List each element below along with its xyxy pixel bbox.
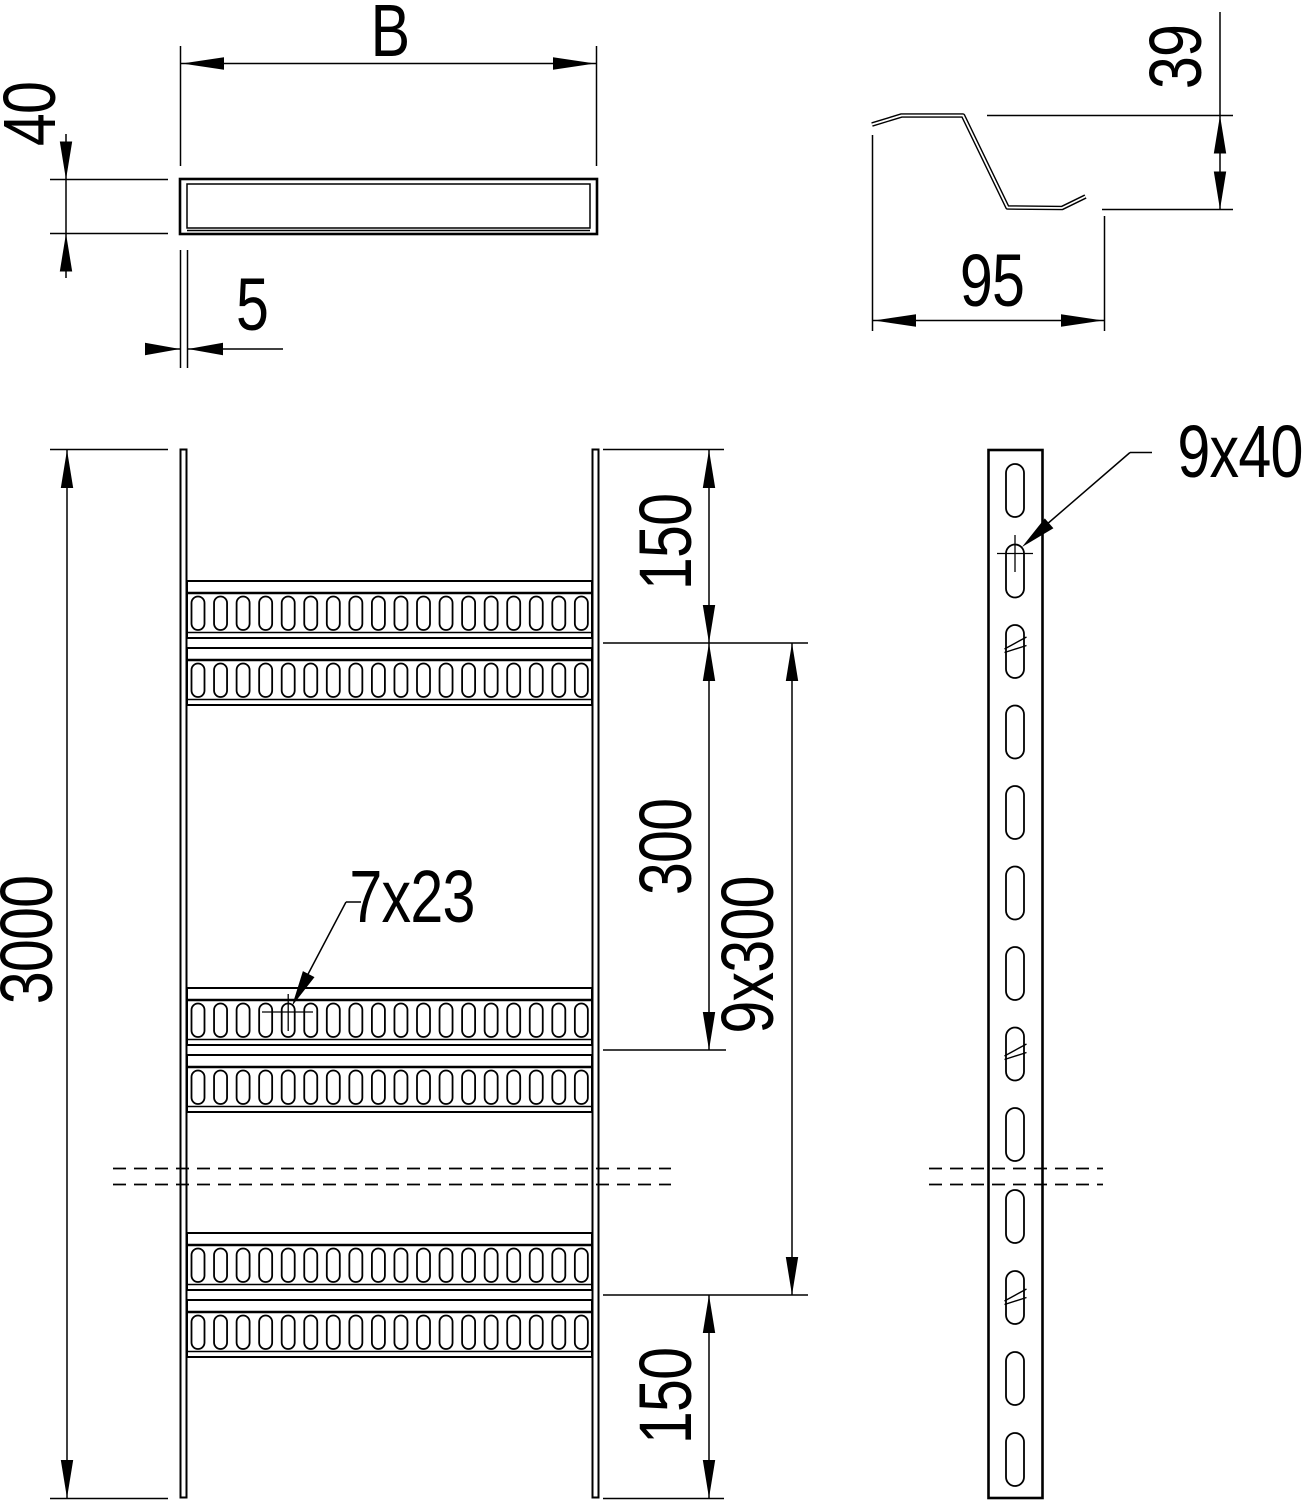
rung-slot bbox=[552, 1249, 565, 1283]
rung-band bbox=[187, 581, 592, 638]
rung-slot bbox=[349, 1071, 362, 1105]
rung-slot bbox=[575, 1004, 588, 1038]
rung-band bbox=[187, 1055, 592, 1112]
dim-label-length: 3000 bbox=[0, 876, 68, 1004]
rail-slot bbox=[1006, 1190, 1024, 1243]
rung-slot bbox=[304, 1316, 317, 1350]
rung-slot bbox=[552, 597, 565, 631]
dim-rail-thickness-5: 5 bbox=[145, 250, 283, 368]
rung-slot bbox=[237, 1071, 250, 1105]
rung-slot bbox=[304, 1249, 317, 1283]
rung-slot bbox=[214, 664, 227, 698]
rung-slot bbox=[552, 1316, 565, 1350]
dim-total-pitch-9x300: 9x300 bbox=[603, 643, 808, 1295]
rung-slot bbox=[327, 1249, 340, 1283]
rail-slot bbox=[1006, 867, 1024, 920]
rung-slot bbox=[237, 1316, 250, 1350]
rung-slot bbox=[575, 1071, 588, 1105]
rung-slot bbox=[259, 597, 272, 631]
dim-label-width-B: B bbox=[371, 0, 410, 72]
rail-slot bbox=[1006, 464, 1024, 517]
rung-slot bbox=[192, 1071, 205, 1105]
dim-label-rail-thickness: 5 bbox=[236, 264, 268, 347]
rung-slot bbox=[394, 597, 407, 631]
rung-slot bbox=[372, 1249, 385, 1283]
rung-slot bbox=[417, 597, 430, 631]
rung-slot bbox=[237, 1004, 250, 1038]
rail-slot bbox=[1006, 1352, 1024, 1405]
rung-slot bbox=[530, 597, 543, 631]
arrowhead bbox=[60, 234, 72, 272]
side-rail-outline bbox=[989, 450, 1043, 1498]
rung-slot bbox=[304, 1004, 317, 1038]
rung-slot bbox=[417, 1316, 430, 1350]
arrowhead bbox=[145, 343, 180, 355]
dim-width-B: B bbox=[181, 0, 597, 166]
rung-slot bbox=[237, 1249, 250, 1283]
rung-slot bbox=[394, 1249, 407, 1283]
arrowhead bbox=[703, 1295, 715, 1333]
rung-slot bbox=[417, 1004, 430, 1038]
rung-slot bbox=[507, 1071, 520, 1105]
left-rail bbox=[181, 450, 187, 1498]
technical-drawing: B 40 5 39 95 bbox=[0, 0, 1316, 1500]
rung-slot bbox=[372, 664, 385, 698]
side-rail-slots bbox=[1005, 464, 1027, 1486]
dim-label-top-spacing: 150 bbox=[625, 494, 708, 590]
dim-top-spacing-150: 150 bbox=[603, 450, 808, 644]
arrowhead bbox=[1061, 314, 1103, 326]
arrowhead bbox=[1214, 116, 1226, 154]
rung-slot bbox=[327, 1316, 340, 1350]
rung-slot bbox=[327, 664, 340, 698]
rail-slot bbox=[1006, 706, 1024, 759]
arrowhead bbox=[874, 314, 916, 326]
rung-slot bbox=[282, 664, 295, 698]
rung-slot bbox=[394, 1071, 407, 1105]
rung-slot bbox=[530, 1004, 543, 1038]
rung-slot bbox=[327, 597, 340, 631]
rung-slot bbox=[485, 1249, 498, 1283]
rung-slot bbox=[372, 1004, 385, 1038]
rung-slot bbox=[349, 1316, 362, 1350]
dim-rung-height-39: 39 bbox=[987, 12, 1233, 210]
rung-slot bbox=[440, 1316, 453, 1350]
dim-label-rung-slot: 7x23 bbox=[349, 856, 474, 939]
rung-slot bbox=[440, 1004, 453, 1038]
callout-rail-slot-9x40: 9x40 bbox=[1022, 411, 1303, 547]
rung-slot bbox=[372, 1316, 385, 1350]
arrowhead bbox=[188, 343, 223, 355]
rung-slot bbox=[214, 1316, 227, 1350]
rung-slot bbox=[327, 1004, 340, 1038]
rung-slot bbox=[192, 597, 205, 631]
rung-slot bbox=[192, 1316, 205, 1350]
rung-slot bbox=[485, 1316, 498, 1350]
rung-slot bbox=[192, 664, 205, 698]
dim-label-rung-width: 95 bbox=[960, 240, 1024, 323]
rung-band bbox=[187, 648, 592, 705]
rail-slot bbox=[1006, 1108, 1024, 1161]
arrowhead bbox=[1214, 172, 1226, 210]
rung-slot bbox=[462, 1249, 475, 1283]
dim-label-rung-height: 39 bbox=[1135, 25, 1218, 89]
rung-slot bbox=[372, 1071, 385, 1105]
rung-slot bbox=[462, 1316, 475, 1350]
rung-slot bbox=[394, 1004, 407, 1038]
arrowhead bbox=[703, 1460, 715, 1498]
leader-line bbox=[1046, 453, 1130, 526]
dim-label-bottom-spacing: 150 bbox=[625, 1348, 708, 1444]
rung-bands bbox=[187, 581, 592, 1357]
rung-slot bbox=[530, 664, 543, 698]
rung-slot bbox=[575, 1316, 588, 1350]
dim-bottom-spacing-150: 150 bbox=[603, 1295, 724, 1499]
rung-slot bbox=[507, 1316, 520, 1350]
rung-slot bbox=[440, 1071, 453, 1105]
rung-slot bbox=[462, 1004, 475, 1038]
rung-slot bbox=[417, 664, 430, 698]
arrowhead bbox=[786, 643, 798, 681]
rung-slot bbox=[552, 1071, 565, 1105]
arrowhead bbox=[61, 450, 73, 488]
ladder-front-view bbox=[113, 450, 671, 1498]
rung-profile-outline bbox=[872, 116, 1086, 209]
rung-slot bbox=[327, 1071, 340, 1105]
rung-slot bbox=[349, 597, 362, 631]
rung-slot bbox=[304, 1071, 317, 1105]
rung-slot bbox=[485, 1071, 498, 1105]
rung-band bbox=[187, 988, 592, 1045]
rung-slot bbox=[304, 597, 317, 631]
rung-slot bbox=[282, 1071, 295, 1105]
rung-band bbox=[187, 1233, 592, 1290]
rung-slot bbox=[214, 597, 227, 631]
rung-slot bbox=[259, 664, 272, 698]
rung-slot bbox=[507, 1004, 520, 1038]
rail-slot bbox=[1006, 786, 1024, 839]
rung-slot bbox=[575, 1249, 588, 1283]
rung-slot bbox=[282, 597, 295, 631]
rung-slot bbox=[349, 664, 362, 698]
rung-slot bbox=[552, 1004, 565, 1038]
rung-slot bbox=[282, 1316, 295, 1350]
rung-slot bbox=[552, 664, 565, 698]
dim-label-rail-height: 40 bbox=[0, 82, 71, 146]
rail-end-outline bbox=[180, 179, 597, 234]
dim-label-rail-slot: 9x40 bbox=[1177, 411, 1302, 494]
rung-slot bbox=[507, 664, 520, 698]
rung-slot bbox=[440, 1249, 453, 1283]
rung-slot bbox=[259, 1249, 272, 1283]
rung-slot bbox=[259, 1071, 272, 1105]
rung-slot bbox=[372, 597, 385, 631]
rung-slot bbox=[192, 1004, 205, 1038]
arrowhead bbox=[182, 57, 224, 70]
rung-slot bbox=[214, 1071, 227, 1105]
arrowhead bbox=[703, 605, 715, 643]
rail-end-inner bbox=[187, 184, 590, 228]
rail-slot bbox=[1006, 947, 1024, 1000]
rung-slot bbox=[214, 1249, 227, 1283]
rung-slot bbox=[417, 1071, 430, 1105]
dim-rail-height-40: 40 bbox=[0, 82, 168, 278]
rung-slot bbox=[575, 664, 588, 698]
rung-slot bbox=[575, 597, 588, 631]
rung-slot bbox=[192, 1249, 205, 1283]
arrowhead bbox=[553, 57, 595, 70]
rung-section-view bbox=[872, 116, 1086, 209]
rung-slot bbox=[530, 1249, 543, 1283]
arrowhead bbox=[786, 1257, 798, 1295]
rung-slot bbox=[214, 1004, 227, 1038]
drawing-page: B 40 5 39 95 bbox=[0, 0, 1316, 1500]
rung-slot bbox=[507, 1249, 520, 1283]
rung-slot bbox=[394, 664, 407, 698]
rung-slot bbox=[440, 597, 453, 631]
rung-slot bbox=[485, 664, 498, 698]
rung-slot bbox=[349, 1249, 362, 1283]
rail-slot bbox=[1006, 1271, 1024, 1324]
dim-length-3000: 3000 bbox=[0, 450, 168, 1499]
rung-slot bbox=[417, 1249, 430, 1283]
rung-band bbox=[187, 1300, 592, 1357]
leader-line bbox=[306, 902, 346, 978]
rung-slot bbox=[485, 1004, 498, 1038]
dim-label-rung-pitch: 300 bbox=[625, 799, 708, 895]
rung-slot bbox=[349, 1004, 362, 1038]
right-rail bbox=[593, 450, 599, 1498]
rung-profile-core bbox=[872, 116, 1086, 209]
rung-slot bbox=[530, 1316, 543, 1350]
rail-end-view bbox=[180, 179, 597, 234]
rung-slot bbox=[462, 597, 475, 631]
rung-slot bbox=[304, 664, 317, 698]
rung-slot bbox=[530, 1071, 543, 1105]
dim-label-total-pitch: 9x300 bbox=[707, 876, 790, 1033]
rail-side-view bbox=[929, 450, 1103, 1498]
rung-slot bbox=[440, 664, 453, 698]
arrowhead bbox=[703, 450, 715, 488]
rung-slot bbox=[237, 664, 250, 698]
rung-slot bbox=[485, 597, 498, 631]
rung-slot bbox=[462, 664, 475, 698]
arrowhead bbox=[60, 142, 72, 180]
rung-slot bbox=[394, 1316, 407, 1350]
arrowhead bbox=[61, 1460, 73, 1498]
rung-slot bbox=[237, 597, 250, 631]
rung-slot bbox=[462, 1071, 475, 1105]
rung-slot bbox=[259, 1316, 272, 1350]
arrowhead bbox=[703, 643, 715, 681]
rung-slot bbox=[259, 1004, 272, 1038]
rung-slot bbox=[282, 1249, 295, 1283]
rung-slot bbox=[507, 597, 520, 631]
rail-slot bbox=[1006, 1433, 1024, 1486]
